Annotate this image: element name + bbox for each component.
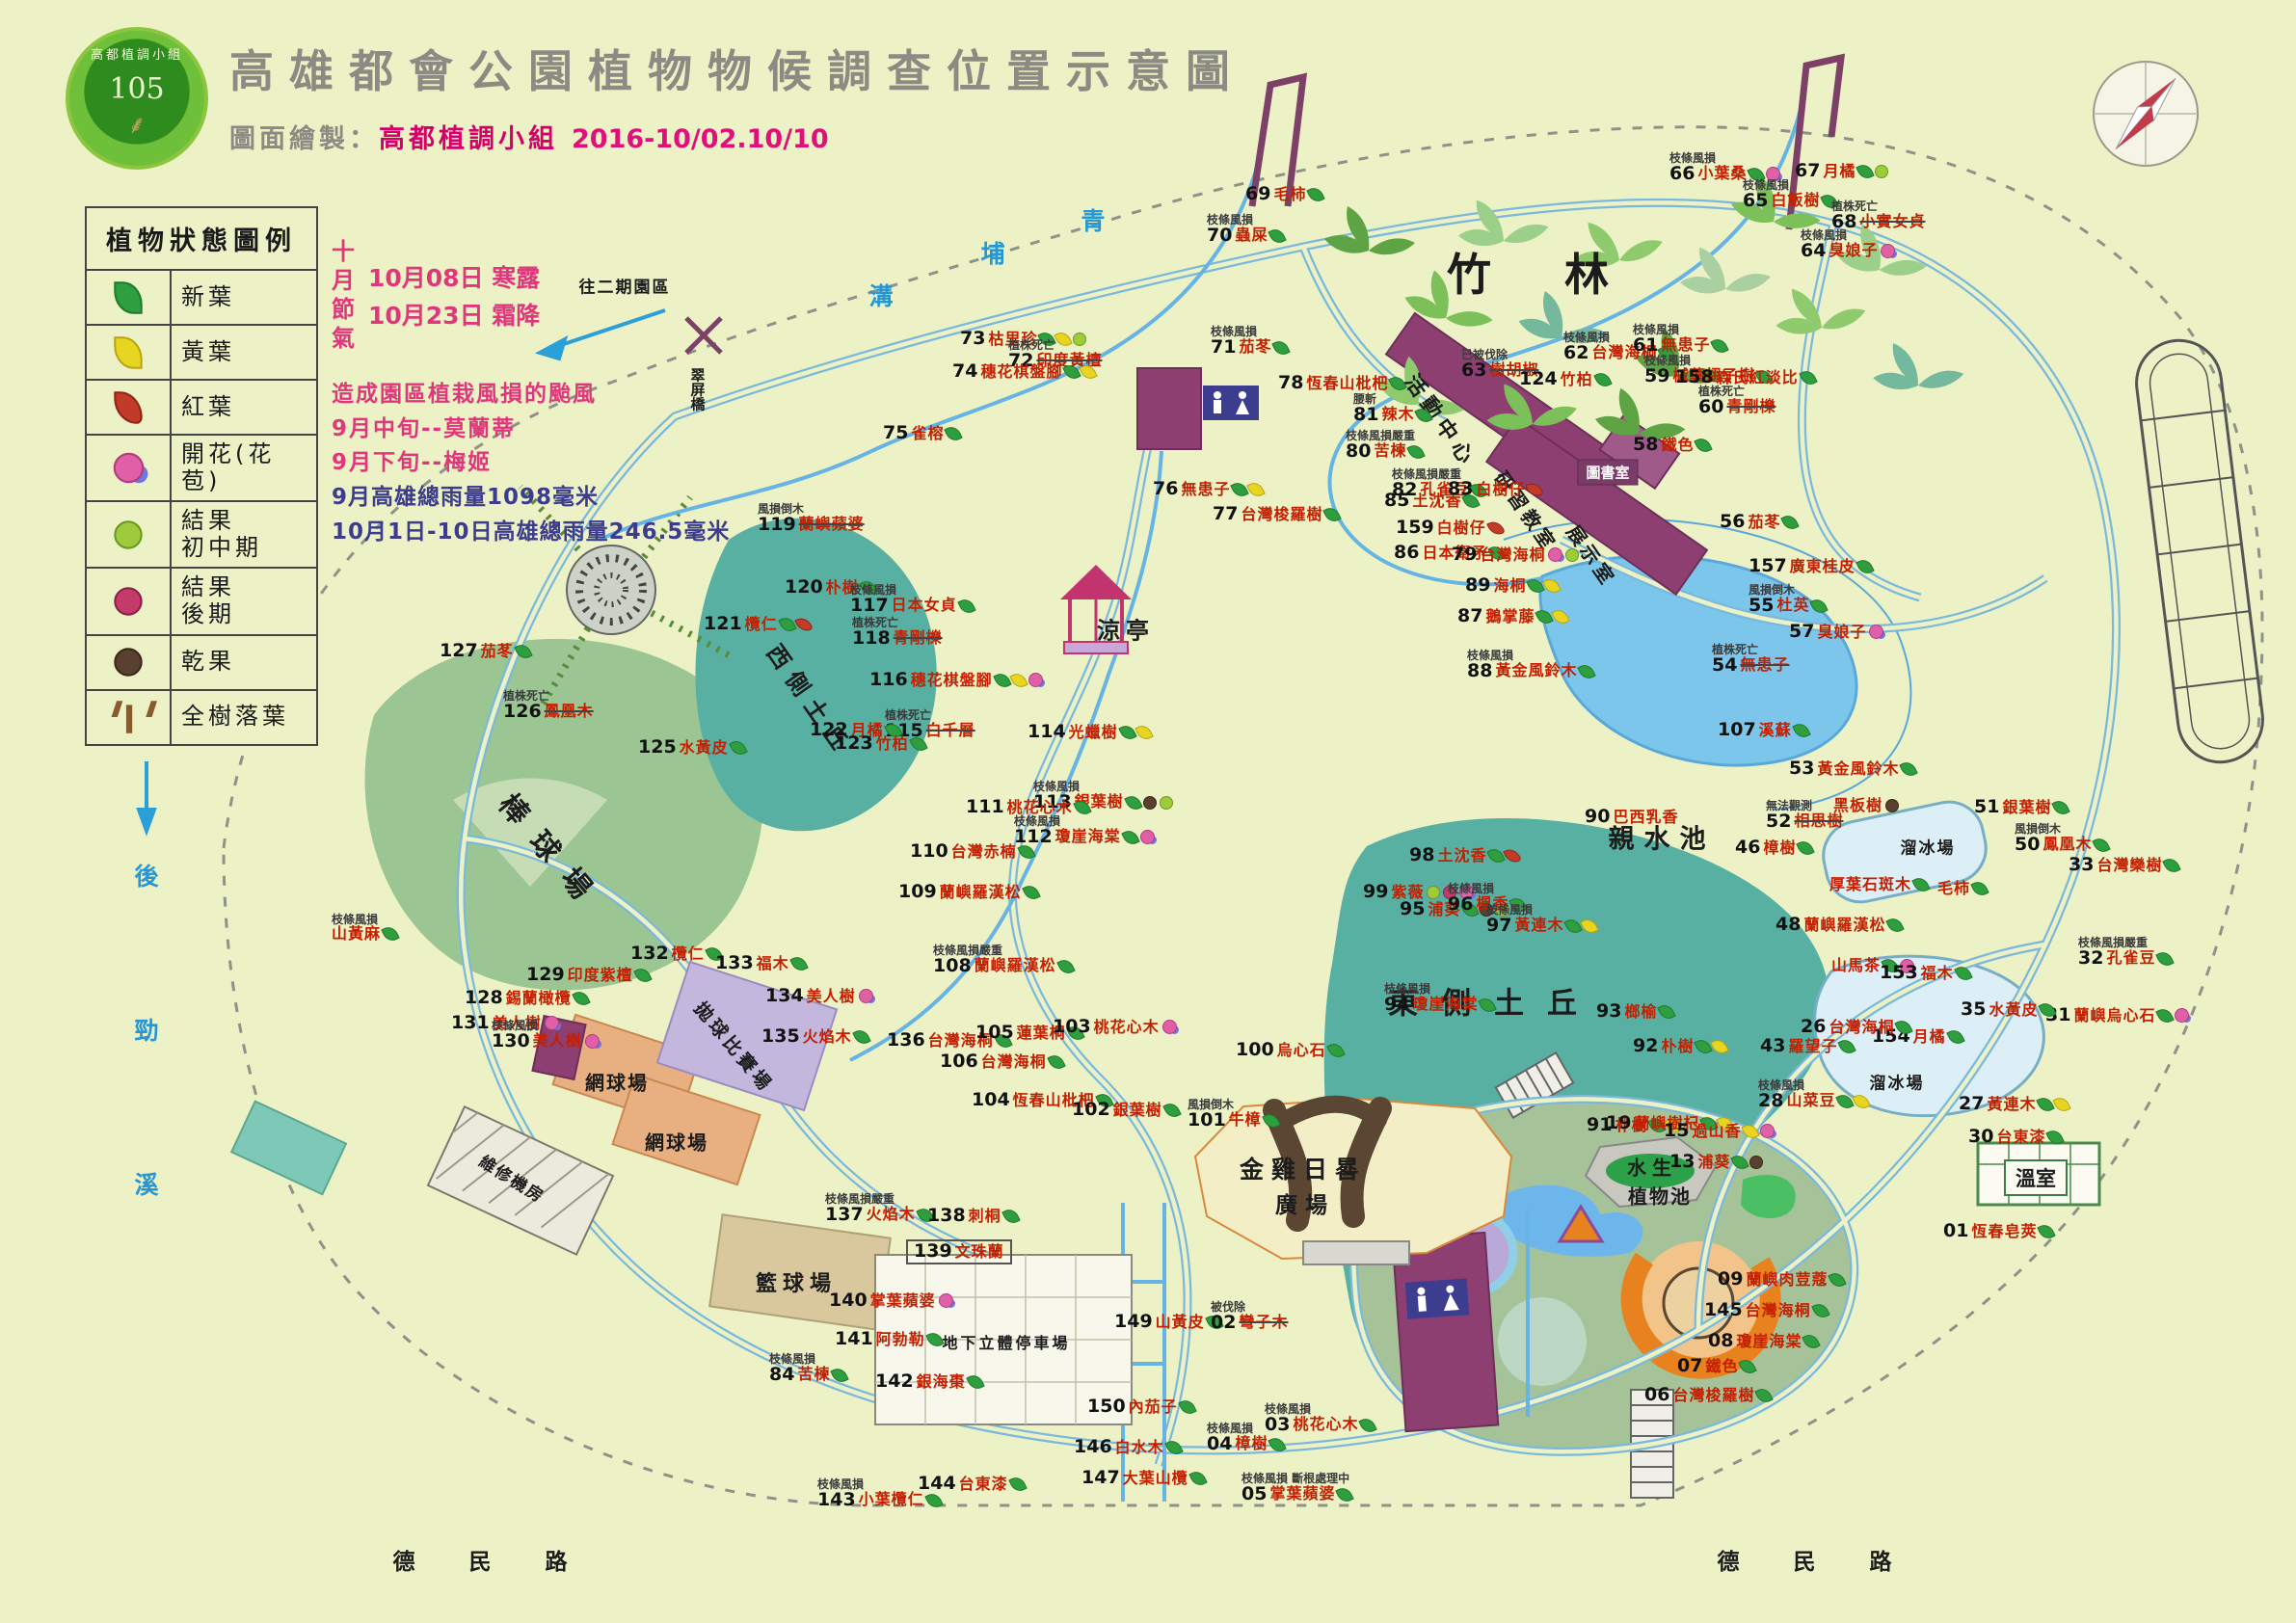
plant-name: 瓊崖海棠 — [1412, 997, 1478, 1013]
y-status-icon — [1711, 1037, 1729, 1056]
y-status-icon — [1009, 671, 1028, 690]
f-status-icon — [1140, 830, 1155, 844]
plant-number: 133 — [715, 954, 754, 973]
plant-name: 溪蘇 — [1759, 723, 1792, 739]
plant-number: 97 — [1486, 917, 1511, 936]
n-status-icon — [1886, 916, 1905, 935]
legend-row: 結果 後期 — [87, 569, 316, 635]
plant-name: 鳳凰木 — [2042, 837, 2092, 853]
plant-marker: 枝條風損88黃金風鈴木 — [1467, 650, 1593, 681]
plant-number: 131 — [451, 1014, 490, 1033]
plant-number: 89 — [1465, 576, 1490, 596]
plant-name: 山馬茶 — [1831, 958, 1881, 974]
compass-rose — [2094, 62, 2198, 166]
plant-name: 青剛櫟 — [1726, 399, 1775, 415]
n-status-icon — [1268, 226, 1287, 245]
plant-name: 銀海棗 — [917, 1374, 966, 1391]
plant-number: 136 — [887, 1031, 925, 1051]
typhoon-note: 9月下旬--梅姬 — [332, 446, 730, 481]
plant-name: 台灣梭羅樹 — [1241, 507, 1322, 523]
n-status-icon — [1121, 827, 1139, 846]
n-status-icon — [1838, 1037, 1856, 1056]
plant-marker: 109蘭嶼羅漢松 — [898, 883, 1038, 902]
plant-number: 13 — [1669, 1153, 1695, 1172]
plant-number: 52 — [1766, 812, 1791, 832]
plant-name: 福木 — [757, 956, 789, 972]
plant-name: 火焰木 — [803, 1029, 852, 1046]
plant-marker: 121欖仁 — [704, 615, 811, 634]
plant-number: 73 — [960, 330, 985, 349]
n-status-icon — [1487, 846, 1506, 865]
plant-number: 51 — [1974, 798, 1999, 817]
facility-label: 籃球場 — [756, 1266, 837, 1297]
r-status-icon — [1526, 480, 1544, 499]
n-status-icon — [831, 1365, 849, 1384]
plant-name: 黑板樹 — [1833, 798, 1882, 814]
plant-marker: 植株死亡68小實女貞 — [1831, 200, 1925, 232]
facility-label: 勁 — [134, 1012, 158, 1047]
f-status-icon — [2175, 1008, 2189, 1023]
plant-name: 穗花棋盤腳 — [980, 364, 1062, 381]
plant-number: 59 — [1644, 367, 1669, 386]
plant-name: 台灣海桐 — [1480, 547, 1545, 564]
typhoon-notes: 造成園區植栽風損的颱風9月中旬--莫蘭蒂9月下旬--梅姬9月高雄總雨量1098毫… — [332, 378, 730, 549]
plant-name: 內茄子 — [1129, 1399, 1178, 1416]
plant-name: 台灣海桐 — [981, 1054, 1047, 1071]
plant-marker: 159白樹仔 — [1396, 519, 1503, 538]
plant-number: 81 — [1353, 406, 1378, 425]
n-status-icon — [114, 281, 142, 314]
plant-name: 銀葉樹 — [2002, 800, 2051, 816]
plant-number: 50 — [2015, 836, 2040, 855]
plant-marker: 74穗花棋盤腳 — [952, 362, 1095, 382]
legend-label: 黃葉 — [172, 333, 316, 372]
plant-marker: 枝條風損61無患子 — [1633, 324, 1726, 356]
plant-name: 樟樹 — [1763, 840, 1796, 857]
n-status-icon — [1124, 792, 1142, 811]
plant-marker: 風損倒木101牛樟 — [1188, 1099, 1278, 1131]
legend-row: 開花(花苞) — [87, 436, 316, 502]
plant-marker: 58鐵色 — [1633, 436, 1710, 455]
plant-number: 35 — [1961, 1000, 1986, 1020]
n-status-icon — [2156, 1006, 2175, 1025]
plant-marker: 植株死亡54無患子 — [1712, 644, 1789, 676]
plant-number: 60 — [1698, 398, 1723, 417]
plant-number: 135 — [761, 1027, 800, 1047]
facility-label: 溝 — [868, 278, 893, 312]
plant-marker: 78恆春山枇杷 — [1278, 374, 1404, 393]
page-title: 高雄都會公園植物物候調查位置示意圖 — [229, 37, 1245, 100]
plant-number: 63 — [1461, 361, 1486, 381]
plant-name: 台灣梭羅樹 — [1672, 1388, 1754, 1404]
plant-marker: 無法觀測52相思樹 — [1766, 800, 1843, 832]
plant-name: 彎子木 — [1239, 1315, 1288, 1331]
plant-marker: 31蘭嶼烏心石 — [2045, 1006, 2189, 1025]
n-status-icon — [1056, 956, 1075, 975]
credit-team: 高都植調小組 — [379, 124, 558, 154]
plant-name: 孔雀豆 — [2106, 950, 2155, 967]
river-flow-arrow — [139, 761, 154, 831]
plant-name: 阿勃勒 — [876, 1332, 925, 1348]
plant-name: 日本女貞 — [892, 598, 957, 614]
n-status-icon — [1231, 480, 1249, 499]
n-status-icon — [2046, 1128, 2065, 1147]
f-status-icon — [939, 1293, 953, 1308]
track-oval — [2132, 335, 2268, 766]
n-status-icon — [2039, 1000, 2057, 1020]
plant-marker: 76無患子 — [1153, 480, 1263, 499]
plant-marker: 93榔榆 — [1596, 1002, 1673, 1022]
plant-marker: 枝條風損65白飯樹 — [1743, 179, 1836, 211]
plant-marker: 153福木 — [1880, 964, 1970, 983]
n-status-icon — [1711, 335, 1729, 355]
plant-marker: 06台灣梭羅樹 — [1644, 1386, 1771, 1405]
n-status-icon — [778, 615, 796, 634]
plant-marker: 30台東漆 — [1968, 1128, 2062, 1147]
legend-label: 結果 初中期 — [172, 502, 316, 567]
plant-marker: 48蘭嶼羅漢松 — [1775, 916, 1902, 935]
plant-number: 125 — [638, 738, 677, 758]
plant-number: 74 — [952, 362, 977, 382]
plant-marker: 158森氏紅淡比 — [1675, 368, 1815, 387]
plant-number: 08 — [1708, 1332, 1733, 1351]
plant-marker: 75雀榕 — [883, 424, 960, 443]
plant-number: 127 — [440, 642, 478, 661]
plant-name: 白水木 — [1115, 1440, 1164, 1456]
plant-marker: 107溪蘇 — [1718, 721, 1808, 740]
plant-number: 106 — [940, 1052, 978, 1072]
n-status-icon — [1073, 798, 1091, 817]
n-status-icon — [1022, 883, 1040, 902]
plant-number: 150 — [1087, 1397, 1126, 1417]
plant-marker: 157廣東桂皮 — [1749, 557, 1872, 576]
plant-marker: 114光蠟樹 — [1028, 723, 1151, 742]
plant-number: 64 — [1801, 242, 1826, 261]
plant-marker: 77台灣梭羅樹 — [1213, 505, 1339, 524]
plant-marker: 146白水木 — [1074, 1438, 1181, 1457]
plant-marker: 枝條風損山黃麻 — [332, 914, 397, 942]
plant-name: 火焰木 — [867, 1207, 916, 1223]
plant-name: 竹柏 — [876, 736, 909, 753]
plant-number: 83 — [1448, 480, 1473, 499]
plant-number: 143 — [817, 1491, 856, 1510]
plant-name: 欖仁 — [745, 617, 778, 633]
n-status-icon — [1739, 1357, 1757, 1376]
plant-name: 巴西乳香 — [1613, 810, 1678, 826]
legend-row: 乾果 — [87, 636, 316, 691]
n-status-icon — [1802, 1332, 1821, 1351]
plant-number: 58 — [1633, 436, 1658, 455]
plant-number: 33 — [2069, 856, 2094, 875]
plant-marker: 枝條風損130美人樹 — [492, 1020, 600, 1051]
plant-number: 99 — [1363, 883, 1388, 902]
plant-number: 19 — [1606, 1114, 1631, 1133]
plant-name: 山菜豆 — [1786, 1093, 1835, 1109]
plant-marker: 57臭娘子 — [1789, 623, 1883, 642]
plant-number: 120 — [785, 578, 823, 598]
plant-number: 124 — [1519, 370, 1558, 389]
solar-term: 10月23日 霜降 — [368, 298, 540, 335]
n-status-icon — [1810, 596, 1829, 615]
plant-marker: 植株死亡118青剛櫟 — [852, 617, 943, 649]
plant-name: 蘭嶼羅漢松 — [1803, 918, 1885, 934]
facility-label: 埔 — [980, 235, 1004, 270]
n-status-icon — [1731, 1153, 1749, 1172]
plant-name: 榔榆 — [1624, 1004, 1657, 1021]
g-status-icon — [1875, 165, 1888, 178]
plant-number: 57 — [1789, 623, 1814, 642]
plant-marker: 腰斬81辣木 — [1353, 393, 1430, 425]
n-status-icon — [1946, 1027, 1964, 1047]
y-status-icon — [2053, 1095, 2071, 1114]
plant-number: 104 — [972, 1091, 1010, 1110]
y-status-icon — [1135, 723, 1153, 742]
n-status-icon — [1268, 1434, 1287, 1453]
n-status-icon — [1479, 995, 1497, 1014]
n-status-icon — [1164, 1438, 1183, 1457]
d-status-icon — [1143, 796, 1157, 810]
n-status-icon — [1162, 1101, 1181, 1120]
n-status-icon — [1415, 405, 1433, 424]
logo-group-name: 高都植調小組 — [69, 44, 204, 63]
plant-number: 48 — [1775, 916, 1801, 935]
plant-number: 110 — [910, 842, 948, 862]
plant-name: 台東漆 — [1996, 1130, 2045, 1146]
facility-label: 網球場 — [645, 1128, 708, 1156]
plant-marker: 129印度紫檀 — [526, 966, 650, 985]
plant-number: 01 — [1943, 1222, 1968, 1241]
plant-name: 苦楝 — [1374, 443, 1406, 460]
plant-name: 杜英 — [1776, 598, 1809, 614]
facility-label: 金雞日晷 — [1240, 1151, 1367, 1185]
f-status-icon — [1162, 1020, 1177, 1034]
plant-name: 臭娘子 — [1817, 625, 1866, 641]
y-status-icon — [1247, 480, 1266, 499]
f-status-icon — [1548, 547, 1562, 562]
plant-marker: 134美人樹 — [765, 987, 873, 1006]
facility-label: 植物池 — [1628, 1182, 1692, 1210]
legend-row: 結果 初中期 — [87, 502, 316, 569]
facility-label: 溜冰場 — [1870, 1070, 1925, 1094]
n-status-icon — [1895, 1018, 1913, 1037]
plant-name: 鳳凰木 — [545, 704, 594, 720]
g-status-icon — [114, 520, 142, 548]
n-status-icon — [729, 738, 747, 758]
plant-number: 75 — [883, 424, 908, 443]
n-status-icon — [1178, 1397, 1196, 1417]
restroom-north — [1137, 368, 1259, 449]
plant-name: 欖仁 — [672, 946, 705, 963]
weather-notes: 十月節氣 10月08日 寒露10月23日 霜降 造成園區植栽風損的颱風9月中旬-… — [332, 237, 730, 549]
n-status-icon — [1336, 1484, 1354, 1503]
n-status-icon — [1911, 875, 1930, 894]
plant-marker: 110台灣赤楠 — [910, 842, 1033, 862]
plant-marker: 145台灣海桐 — [1704, 1301, 1828, 1320]
park-map: 高都植調小組 105 ⸙ 高雄都會公園植物物候調查位置示意圖 圖面繪製：高都植調… — [0, 0, 2296, 1623]
y-status-icon — [1080, 362, 1098, 382]
facility-label: 溫室 — [2004, 1159, 2068, 1196]
plant-number: 98 — [1409, 846, 1434, 865]
plant-name: 蘭嶼蘋婆 — [799, 517, 865, 533]
n-status-icon — [1323, 505, 1342, 524]
n-status-icon — [1900, 759, 1918, 779]
n-status-icon — [1118, 723, 1136, 742]
plant-marker: 149山黃皮 — [1114, 1313, 1221, 1332]
plant-number: 109 — [898, 883, 937, 902]
plant-name: 黃連木 — [1987, 1097, 2036, 1113]
plant-marker: 26台灣海桐 — [1801, 1018, 1910, 1037]
plant-name: 白樹仔 — [1476, 482, 1525, 498]
facility-label: 溪 — [134, 1166, 158, 1201]
plant-marker: 67月橘 — [1795, 162, 1888, 181]
solar-term-header: 十月節氣 — [332, 237, 355, 353]
legend-row: 新葉 — [87, 271, 316, 326]
plant-marker: 枝條風損 斷根處理中05掌葉蘋婆 — [1241, 1473, 1351, 1504]
survey-dates: 2016-10/02.10/10 — [572, 124, 829, 154]
plant-number: 96 — [1448, 895, 1473, 915]
facility-label: 溜冰場 — [1901, 835, 1956, 859]
plant-marker: 53黃金風鈴木 — [1789, 759, 1915, 779]
plant-name: 辣木 — [1381, 407, 1414, 423]
plant-marker: 枝條風損嚴重108蘭嶼羅漢松 — [933, 945, 1073, 976]
plant-name: 蘭嶼肉荳蔻 — [1746, 1272, 1828, 1289]
plant-number: 80 — [1346, 442, 1371, 462]
plant-marker: 90巴西乳香 — [1585, 808, 1678, 827]
n-status-icon — [852, 1027, 870, 1047]
plant-number: 142 — [875, 1372, 914, 1392]
plant-marker: 140掌葉蘋婆 — [829, 1291, 953, 1311]
plant-number: 130 — [492, 1032, 530, 1051]
plant-name: 福木 — [1921, 966, 1954, 982]
facility-label: 圖書室 — [1577, 460, 1638, 486]
plant-number: 144 — [918, 1475, 956, 1494]
n-status-icon — [1389, 374, 1407, 393]
n-status-icon — [1564, 916, 1583, 935]
plant-name: 台灣海桐 — [1746, 1303, 1811, 1319]
n-status-icon — [1578, 661, 1596, 680]
plant-number: 114 — [1028, 723, 1066, 742]
legend-title: 植物狀態圖例 — [87, 208, 316, 271]
n-status-icon — [1047, 1052, 1065, 1072]
plant-number: 95 — [1400, 900, 1425, 919]
plant-number: 28 — [1758, 1092, 1783, 1111]
plant-marker: 98土沈香 — [1409, 846, 1519, 865]
plant-marker: 27黃連木 — [1959, 1095, 2069, 1114]
plant-name: 無患子 — [1661, 337, 1710, 354]
plant-marker: 147大葉山欖 — [1081, 1469, 1205, 1488]
plant-marker: 128錫蘭橄欖 — [465, 989, 588, 1008]
plant-marker: 枝條風損嚴重80苦楝 — [1346, 430, 1423, 462]
plant-number: 27 — [1959, 1095, 1984, 1114]
plant-marker: 142銀海棗 — [875, 1372, 982, 1392]
plant-name: 森氏紅淡比 — [1717, 370, 1799, 386]
plant-number: 87 — [1457, 607, 1482, 626]
legend-label: 紅葉 — [172, 388, 316, 427]
plant-name: 蘭嶼羅漢松 — [974, 958, 1056, 974]
plant-marker: 09蘭嶼肉荳蔻 — [1718, 1270, 1844, 1290]
plant-name: 樟樹 — [1235, 1436, 1268, 1452]
r-status-icon — [1504, 846, 1522, 865]
facility-label: 網球場 — [585, 1068, 649, 1096]
plant-number: 128 — [465, 989, 503, 1008]
plant-name: 鵝掌藤 — [1485, 609, 1535, 625]
y-status-icon — [1742, 1122, 1760, 1141]
n-status-icon — [1527, 576, 1545, 596]
plant-marker: 51銀葉樹 — [1974, 798, 2068, 817]
legend-label: 開花(花苞) — [172, 436, 316, 500]
n-status-icon — [514, 642, 532, 661]
plant-name: 黃金風鈴木 — [1817, 761, 1899, 778]
plant-name: 毛柿 — [1273, 187, 1306, 203]
plant-marker: 150內茄子 — [1087, 1397, 1194, 1417]
plant-name: 雀榕 — [911, 426, 944, 442]
plant-marker: 植株死亡60青剛櫟 — [1698, 386, 1775, 417]
plant-name: 小實女貞 — [1859, 214, 1925, 230]
plant-marker: 35水黃皮 — [1961, 1000, 2054, 1020]
plant-number: 108 — [933, 957, 972, 976]
plant-marker: 102銀葉樹 — [1072, 1101, 1179, 1120]
d-status-icon — [1885, 799, 1899, 812]
n-status-icon — [1407, 441, 1426, 461]
plant-marker: 79台灣海桐 — [1452, 545, 1579, 565]
plant-name: 無患子 — [1740, 657, 1789, 674]
facility-label: 後 — [134, 858, 158, 892]
plant-number: 55 — [1749, 597, 1774, 616]
solar-term: 10月08日 寒露 — [368, 260, 540, 298]
plant-name: 穗花棋盤腳 — [911, 673, 993, 689]
plant-marker: 33台灣欒樹 — [2069, 856, 2178, 875]
plant-name: 印度紫檀 — [568, 968, 633, 984]
n-status-icon — [1326, 1041, 1345, 1060]
f-status-icon — [585, 1034, 600, 1049]
plant-name: 刺桐 — [969, 1209, 1001, 1225]
plant-marker: 風損倒木50鳳凰木 — [2015, 823, 2108, 855]
plant-name: 掌葉蘋婆 — [870, 1293, 936, 1310]
plant-number: 101 — [1188, 1111, 1226, 1131]
plant-number: 79 — [1452, 545, 1477, 565]
plant-name: 瓊崖海棠 — [1055, 829, 1121, 845]
plant-number: 76 — [1153, 480, 1178, 499]
plant-marker: 黑板樹 — [1833, 798, 1899, 814]
plant-marker: 枝條風損04樟樹 — [1207, 1423, 1284, 1454]
plant-marker: 枝條風損97黃連木 — [1486, 904, 1596, 936]
g-status-icon — [1427, 886, 1440, 899]
plant-number: 04 — [1207, 1435, 1232, 1454]
plant-number: 117 — [850, 597, 889, 616]
logo-year: 105 — [69, 72, 204, 106]
plant-number: 30 — [1968, 1128, 1993, 1147]
plant-marker: 127茄苳 — [440, 642, 530, 661]
typhoon-note: 造成園區植栽風損的颱風 — [332, 378, 730, 412]
y-status-icon — [1581, 916, 1599, 935]
plant-number: 67 — [1795, 162, 1820, 181]
plant-marker: 枝條風損84苦楝 — [769, 1353, 846, 1385]
plant-number: 61 — [1633, 336, 1658, 356]
plant-number: 132 — [630, 945, 669, 964]
plant-name: 臭娘子 — [1829, 243, 1878, 259]
plant-name: 浦葵 — [1697, 1155, 1730, 1171]
plant-number: 149 — [1114, 1313, 1153, 1332]
bare-status-icon — [112, 701, 145, 733]
plant-name: 恆春山枇杷 — [1306, 376, 1388, 392]
plant-number: 134 — [765, 987, 804, 1006]
n-status-icon — [1593, 370, 1612, 389]
plant-name: 小葉桑 — [1697, 166, 1747, 182]
plant-marker: 07鐵色 — [1677, 1357, 1754, 1376]
plant-number: 71 — [1211, 338, 1236, 358]
f-status-icon — [1028, 673, 1043, 687]
n-status-icon — [1856, 162, 1875, 181]
